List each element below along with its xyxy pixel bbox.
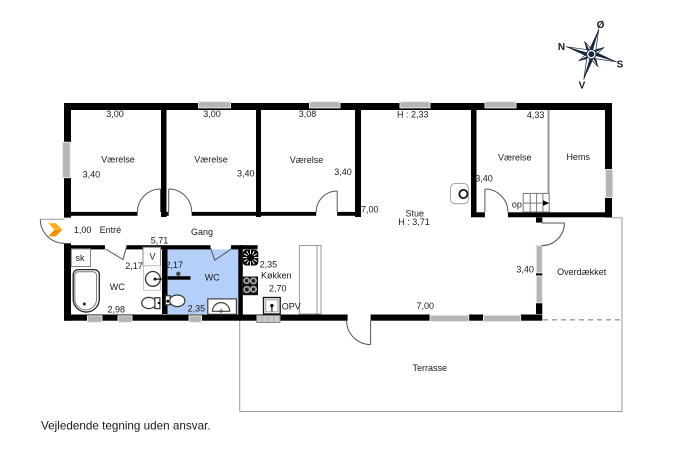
svg-text:Køkken: Køkken [261, 270, 292, 280]
svg-text:Vejledende tegning uden ansvar: Vejledende tegning uden ansvar. [41, 420, 211, 433]
svg-text:V: V [149, 251, 155, 261]
svg-text:4,33: 4,33 [527, 110, 545, 120]
svg-text:2,70: 2,70 [269, 284, 287, 294]
svg-text:3,40: 3,40 [334, 167, 352, 177]
svg-text:H : 3,71: H : 3,71 [398, 217, 430, 227]
svg-text:Overdækket: Overdækket [557, 267, 607, 277]
svg-text:WC: WC [110, 282, 125, 292]
svg-text:S: S [617, 60, 624, 71]
svg-text:Værelse: Værelse [498, 152, 532, 162]
svg-text:2,35: 2,35 [260, 260, 278, 270]
svg-text:Værelse: Værelse [101, 155, 135, 165]
svg-text:OPV: OPV [282, 301, 301, 311]
svg-text:sk: sk [76, 253, 86, 263]
svg-text:Hems: Hems [566, 152, 590, 162]
svg-text:1,00: 1,00 [74, 225, 92, 235]
svg-text:Entré: Entré [100, 225, 122, 235]
svg-text:3,40: 3,40 [83, 170, 101, 180]
svg-text:3,40: 3,40 [516, 264, 534, 274]
svg-text:2,17: 2,17 [166, 260, 184, 270]
svg-text:Værelse: Værelse [194, 155, 228, 165]
svg-text:5,71: 5,71 [151, 235, 169, 245]
svg-text:H : 2,33: H : 2,33 [397, 109, 429, 119]
svg-text:Ø: Ø [597, 20, 605, 31]
svg-text:Gang: Gang [191, 227, 213, 237]
svg-text:3,00: 3,00 [203, 109, 221, 119]
svg-text:V: V [579, 81, 586, 92]
svg-text:op: op [512, 200, 522, 210]
svg-text:7,00: 7,00 [361, 205, 379, 215]
svg-text:Terrasse: Terrasse [413, 363, 448, 373]
svg-text:2,17: 2,17 [125, 261, 143, 271]
svg-text:3,40: 3,40 [237, 169, 255, 179]
svg-text:Værelse: Værelse [290, 155, 324, 165]
svg-text:N: N [558, 42, 565, 53]
svg-text:3,00: 3,00 [106, 109, 124, 119]
svg-text:7,00: 7,00 [417, 301, 435, 311]
svg-text:3,40: 3,40 [475, 174, 493, 184]
svg-text:WC: WC [205, 272, 220, 282]
svg-text:2,98: 2,98 [108, 304, 126, 314]
svg-text:3,08: 3,08 [299, 109, 317, 119]
svg-text:2,35: 2,35 [188, 304, 206, 314]
